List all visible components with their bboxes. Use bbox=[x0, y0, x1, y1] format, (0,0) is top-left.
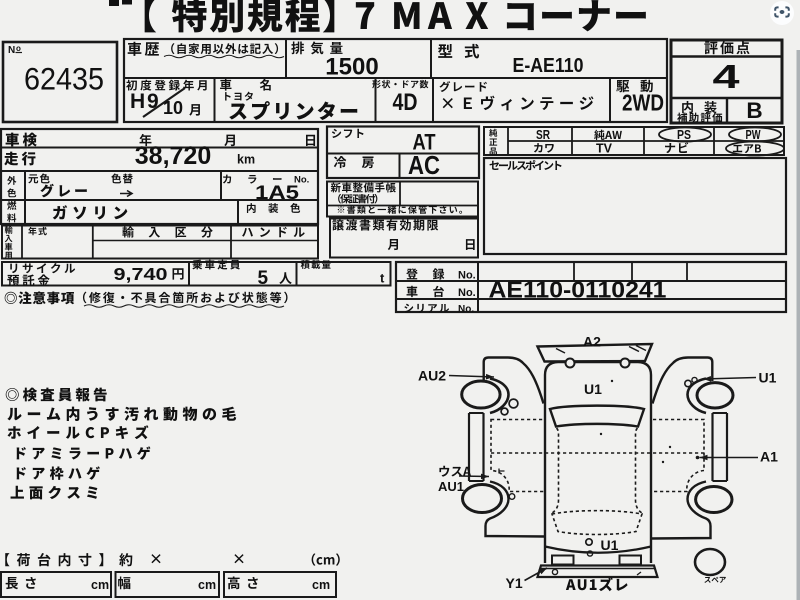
svg-text:5: 5 bbox=[258, 268, 269, 289]
svg-text:1500: 1500 bbox=[325, 54, 378, 81]
svg-text:U1: U1 bbox=[601, 537, 619, 553]
svg-text:1A5: 1A5 bbox=[255, 183, 300, 204]
svg-text:E-AE110: E-AE110 bbox=[513, 55, 584, 77]
svg-text:cm: cm bbox=[198, 578, 216, 592]
svg-text:No.: No. bbox=[458, 287, 476, 299]
svg-text:AE110-0110241: AE110-0110241 bbox=[489, 277, 667, 303]
svg-text:U1: U1 bbox=[584, 381, 602, 397]
svg-text:N: N bbox=[8, 45, 15, 56]
svg-text:km: km bbox=[237, 153, 255, 167]
svg-text:PW: PW bbox=[746, 127, 762, 142]
svg-text:9,740: 9,740 bbox=[114, 264, 168, 284]
svg-text:SR: SR bbox=[536, 127, 550, 142]
svg-text:H: H bbox=[130, 90, 145, 113]
svg-text:t: t bbox=[380, 271, 385, 286]
svg-text:Y1: Y1 bbox=[506, 575, 523, 591]
svg-text:38,720: 38,720 bbox=[135, 142, 211, 170]
svg-text:TV: TV bbox=[596, 141, 612, 156]
svg-text:PS: PS bbox=[677, 127, 691, 142]
svg-text:B: B bbox=[746, 98, 762, 123]
svg-text:A2: A2 bbox=[583, 334, 601, 350]
svg-text:10: 10 bbox=[163, 98, 183, 118]
svg-text:No.: No. bbox=[458, 270, 476, 282]
svg-text:4D: 4D bbox=[393, 89, 418, 116]
svg-text:AU2: AU2 bbox=[418, 368, 446, 384]
svg-text:A1: A1 bbox=[760, 449, 778, 465]
svg-text:4: 4 bbox=[713, 58, 741, 95]
svg-text:62435: 62435 bbox=[24, 61, 104, 97]
svg-text:cm: cm bbox=[312, 578, 330, 592]
svg-text:AU1: AU1 bbox=[438, 479, 464, 494]
svg-text:cm: cm bbox=[91, 578, 109, 592]
svg-text:AC: AC bbox=[408, 150, 440, 180]
svg-text:2WD: 2WD bbox=[622, 90, 664, 116]
svg-text:No.: No. bbox=[458, 304, 474, 315]
svg-text:o: o bbox=[16, 44, 21, 53]
svg-text:U1: U1 bbox=[759, 370, 777, 386]
